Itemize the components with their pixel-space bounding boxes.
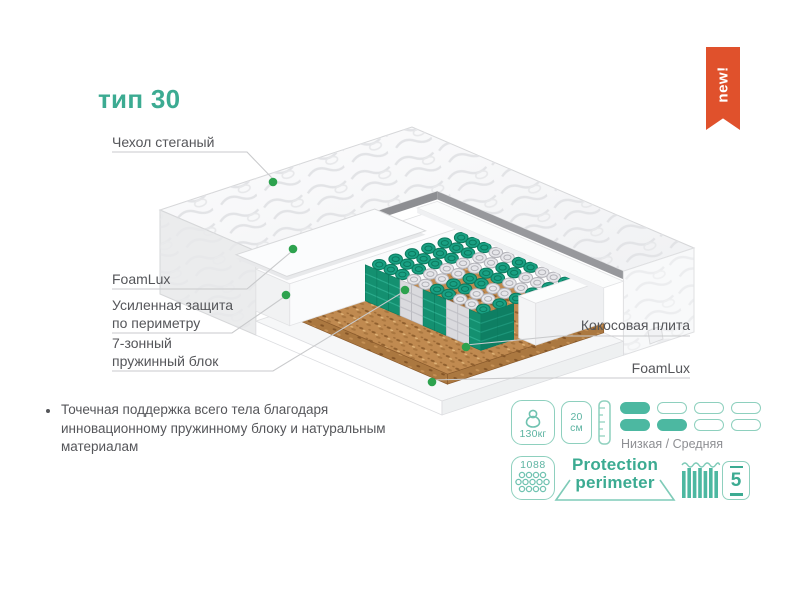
kettlebell-icon xyxy=(522,409,544,429)
firmness-scale xyxy=(620,402,768,436)
firmness-pill xyxy=(620,402,650,414)
leader-line xyxy=(112,152,273,179)
warranty-value: 5 xyxy=(731,471,742,491)
callout-foamlux-right: FoamLux xyxy=(632,359,690,377)
firmness-pill xyxy=(657,402,687,414)
perimeter-outline-icon xyxy=(552,452,678,504)
callout-marker-dot xyxy=(269,178,278,187)
callout-marker-dot xyxy=(282,291,291,300)
callout-perimeter-line1: Усиленная защита xyxy=(112,296,233,314)
callout-springs-line2: пружинный блок xyxy=(112,352,218,370)
spring-block-icon xyxy=(681,459,721,500)
firmness-pill xyxy=(694,402,724,414)
callout-cover: Чехол стеганый xyxy=(112,133,214,151)
callout-marker-dot xyxy=(428,378,437,387)
warranty-underbar xyxy=(730,493,743,496)
height-unit: см xyxy=(570,423,583,434)
height-value: 20 xyxy=(570,412,582,423)
feature-bullet: Точечная поддержка всего тела благодаря … xyxy=(46,401,436,457)
callout-coconut: Кокосовая плита xyxy=(581,316,690,334)
firmness-pill xyxy=(731,402,761,414)
firmness-pill xyxy=(694,419,724,431)
springs-grid-icon xyxy=(513,471,553,497)
ruler-icon xyxy=(598,400,611,445)
max-weight-card: 130кг xyxy=(511,400,555,445)
firmness-pill xyxy=(620,419,650,431)
height-card: 20 см xyxy=(561,401,592,444)
warranty-card: 5 xyxy=(722,461,750,500)
new-ribbon: new! xyxy=(706,47,740,130)
callout-perimeter-line2: по периметру xyxy=(112,314,233,332)
firmness-row xyxy=(620,419,768,431)
mattress-layers xyxy=(160,127,694,415)
page-title: тип 30 xyxy=(98,84,180,115)
max-weight-value: 130кг xyxy=(520,429,547,440)
warranty-overbar xyxy=(730,466,743,469)
callout-marker-dot xyxy=(401,286,410,295)
callout-marker-dot xyxy=(289,245,298,254)
feature-bullet-text: Точечная поддержка всего тела благодаря … xyxy=(61,401,433,457)
callout-foamlux-left: FoamLux xyxy=(112,270,170,288)
firmness-pill xyxy=(657,419,687,431)
mattress-infographic: new! тип 30 Чехол стеганый FoamLux Усиле… xyxy=(0,0,800,592)
callout-perimeter: Усиленная защита по периметру xyxy=(112,296,233,332)
firmness-row xyxy=(620,402,768,414)
bullet-dot xyxy=(46,409,50,413)
perimeter-foam-right-front xyxy=(519,296,536,345)
callout-springs-line1: 7-зонный xyxy=(112,334,218,352)
callout-springs: 7-зонный пружинный блок xyxy=(112,334,218,370)
new-ribbon-label: new! xyxy=(715,66,732,102)
springs-count-card: 1088 xyxy=(511,456,555,500)
firmness-pill xyxy=(731,419,761,431)
firmness-label: Низкая / Средняя xyxy=(621,437,723,451)
callout-marker-dot xyxy=(462,343,471,352)
springs-count-value: 1088 xyxy=(520,460,546,471)
